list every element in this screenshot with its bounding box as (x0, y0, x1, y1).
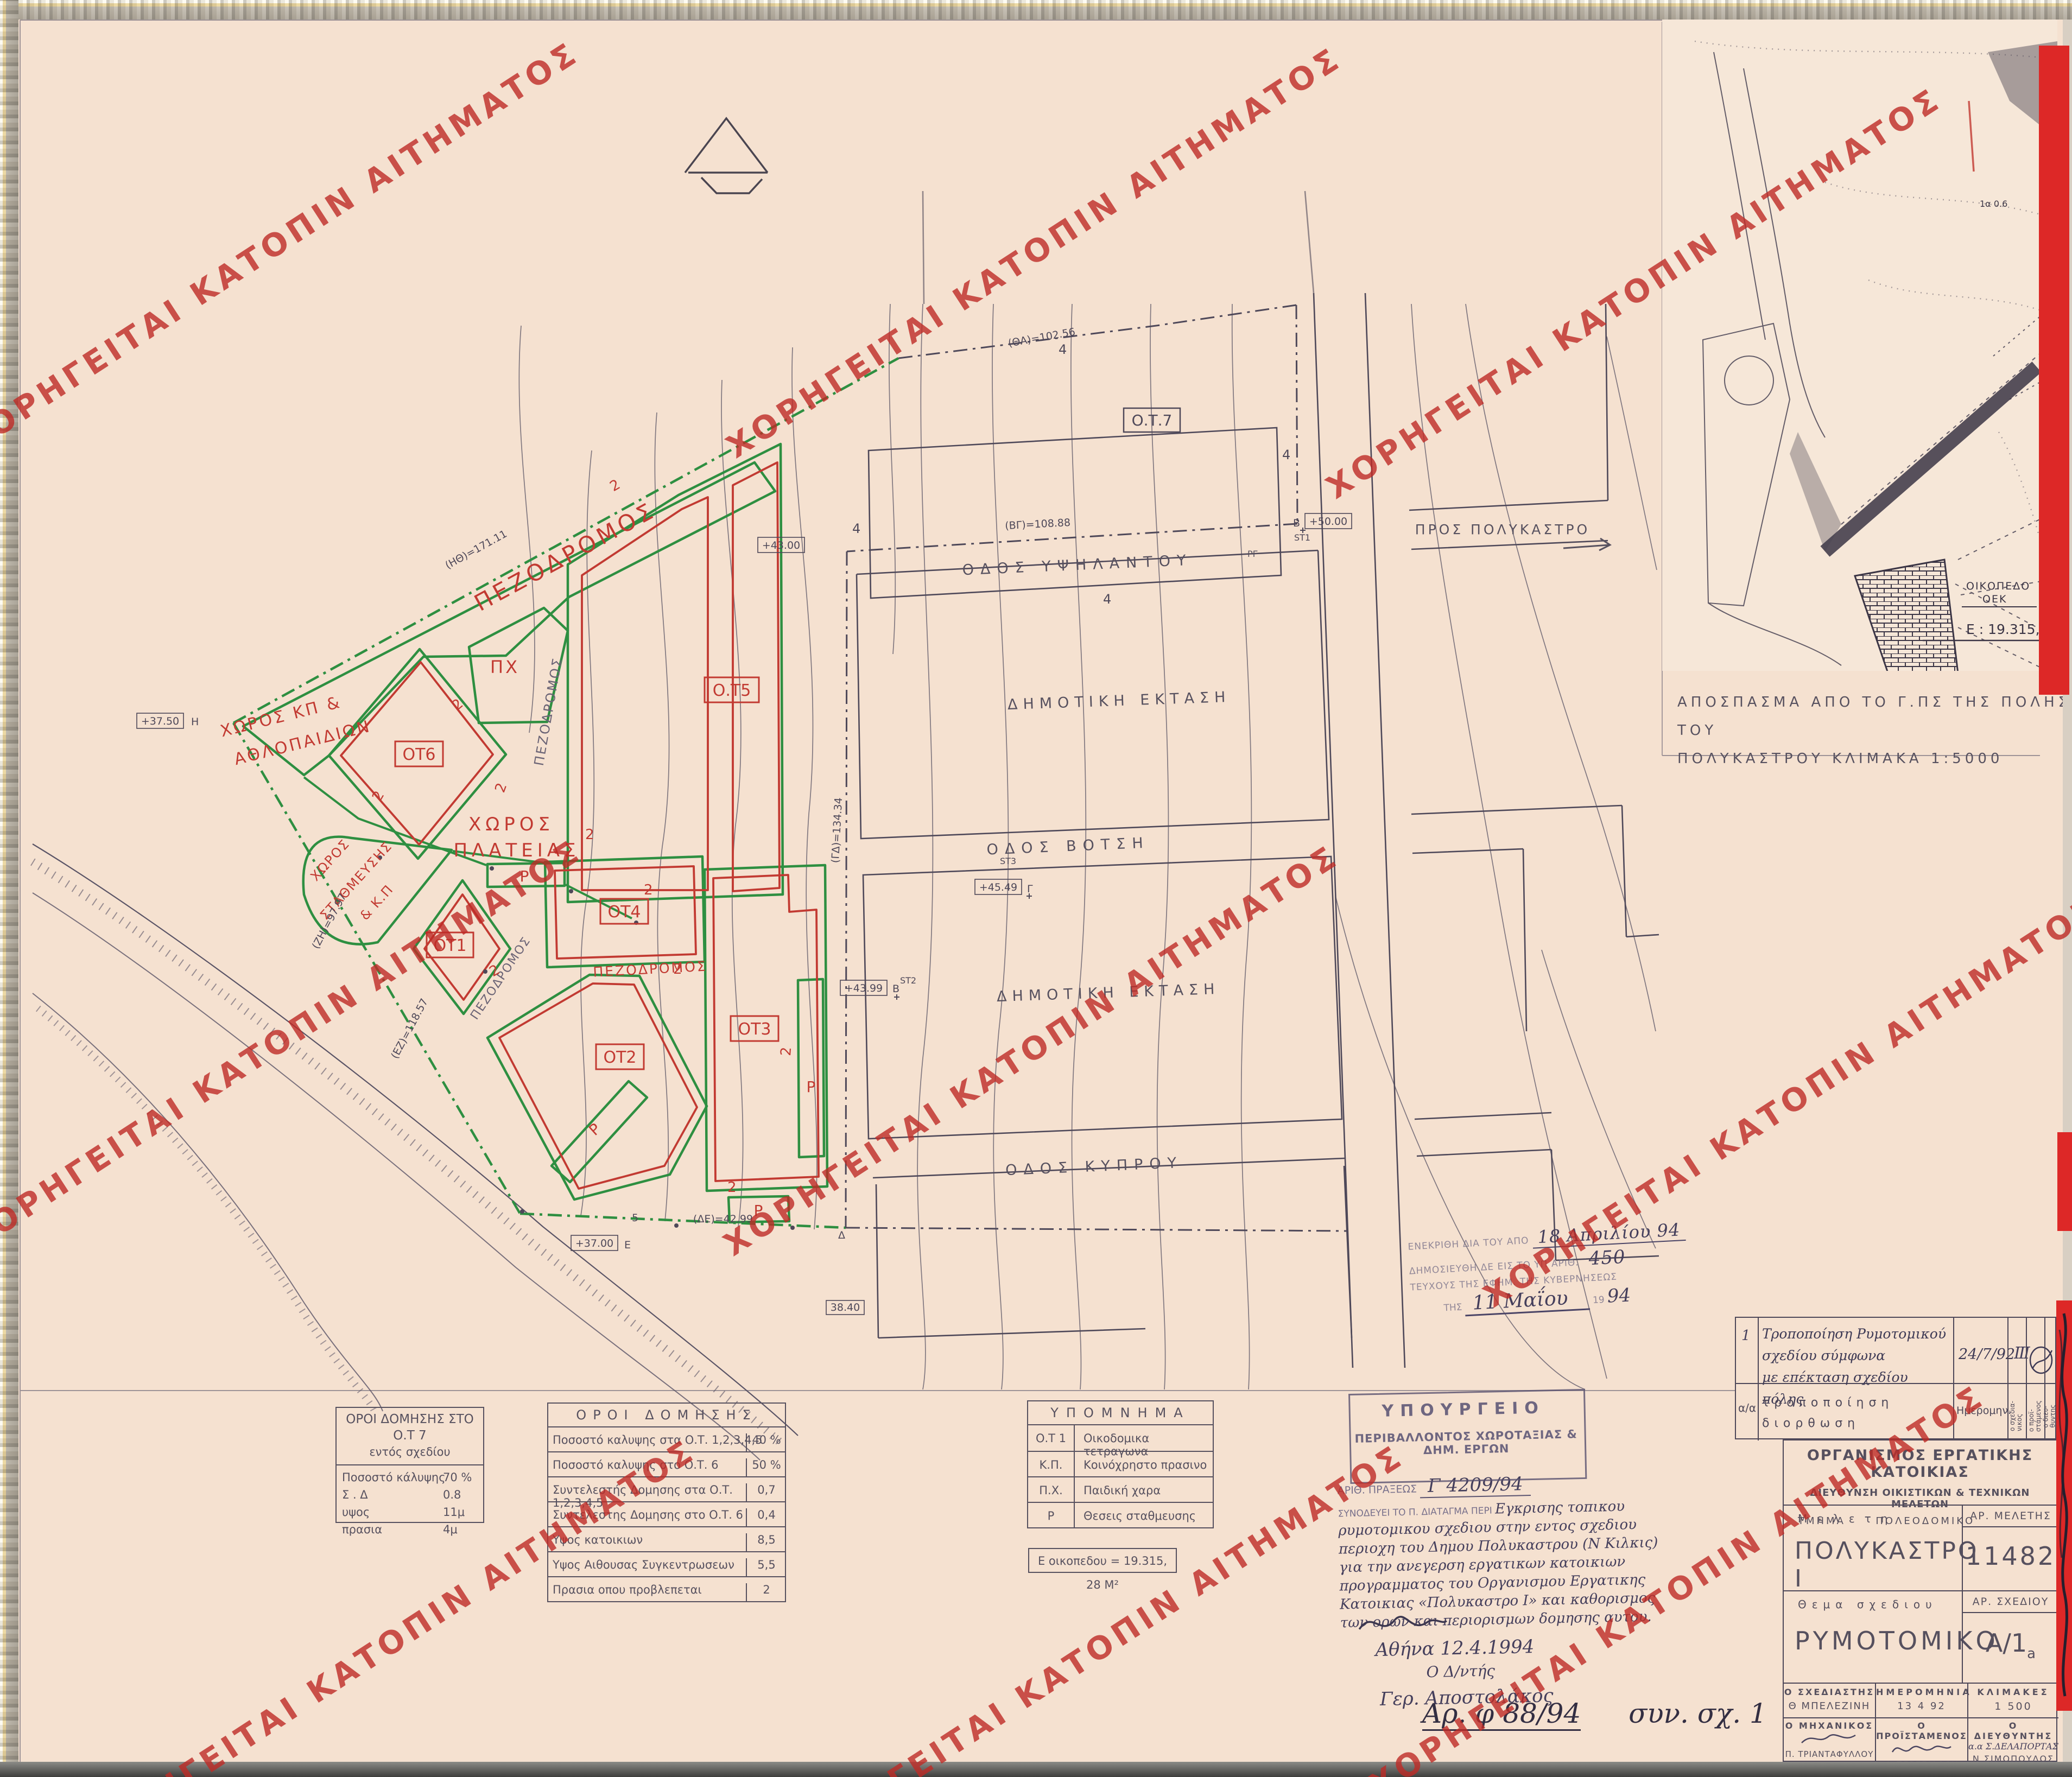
contour-mark: 4 (1103, 592, 1111, 607)
row-label: πρασια (342, 1523, 382, 1536)
pezodromos-label: ΠΕΖΟΔΡΟΜΟΣ (470, 497, 661, 617)
accompanies-label: ΣΥΝΟΔΕΥΕΙ ΤΟ Π. ΔΙΑΤΑΓΜΑ ΠΕΡΙ (1338, 1506, 1492, 1520)
scale-label: ΚΛΙΜΑΚΕΣ (1968, 1684, 2058, 1697)
designer-label: Ο ΣΧΕΔΙΑΣΤΗΣ (1784, 1684, 1875, 1697)
row-value: 70 % (443, 1471, 472, 1484)
revision-desc-line: Τροποποίηση Ρυμοτομικού σχεδίου σύμφωνα (1762, 1323, 1953, 1367)
vertical-header-line: στάμενος (2035, 1400, 2042, 1432)
city-boundary-dark (1296, 305, 1297, 524)
row-label: Ποσοστό κάλυψης (342, 1471, 446, 1484)
table-row: υψος 11μ (337, 1501, 483, 1519)
study-no-value: 11482 (1963, 1527, 2058, 1571)
row-value: 11μ (443, 1506, 465, 1519)
inset-parcel-label: ΟΙΚΟΠΕΔΟ (1966, 580, 2030, 592)
contour-line (519, 326, 535, 733)
inset-dark-blob (1790, 432, 1841, 551)
archive-note-sheet: συν. σχ. 1 (1629, 1698, 1767, 1729)
pt-mark: ST2 (900, 975, 916, 986)
row-value: 40 % (746, 1433, 786, 1452)
legend-code: Ο.Τ 1 (1028, 1432, 1074, 1445)
legend-title: ΥΠΟΜΝΗΜΑ (1028, 1401, 1213, 1425)
dimension-mark: 2 (369, 788, 388, 804)
table-row: Υψος Αιθουσας Συγκεντρωσεων 5,5 (548, 1551, 785, 1576)
row-value: 8,5 (746, 1533, 786, 1552)
street-mark-rg: ΡΓ (1247, 549, 1258, 559)
elev-mark: +50.00 (1309, 516, 1347, 528)
street-label-votsi: ΟΔΟΣ ΒΟΤΣΗ (986, 834, 1150, 858)
inset-map: ΟΙΚΟΠΕΔΟ ΟΕΚ Ε : 19.315,28 μ² 1α 0.6 (1662, 20, 2057, 671)
legend-label: Κοινόχρηστο πρασινο (1083, 1458, 1207, 1471)
red-block-outlines (341, 462, 819, 1189)
row-label: Ποσοστό καλυψης στα Ο.Τ. 1,2,3,4,5 (553, 1433, 763, 1446)
inset-parcel-outline (1703, 323, 1790, 606)
pezodromos-label: ΠΕΖΟΔΡΟΜΟΣ (531, 656, 566, 767)
legend-divider (1074, 1477, 1075, 1503)
inset-small-mark: 1α 0.6 (1980, 199, 2007, 209)
date-label: ΗΜΕΡΟΜΗΝΙΑ (1876, 1684, 1967, 1697)
legend-divider (1074, 1425, 1075, 1451)
row-value: 0,4 (746, 1508, 786, 1527)
red-film-strip-mid (2057, 1132, 2072, 1231)
block-label-text: ΟΤ3 (738, 1020, 771, 1039)
table-row: Σ . Δ 0.8 (337, 1484, 483, 1501)
inset-dark-band (1825, 367, 2037, 551)
street-label-kyprou: ΟΔΟΣ ΚΥΠΡΟΥ (1005, 1154, 1183, 1179)
subject-name: ΡΥΜΟΤΟΜΙΚΟ (1784, 1611, 1962, 1655)
dimension-mark: 2 (585, 827, 594, 843)
stamp-handwriting: Εγκρισης τοπικου (1495, 1498, 1625, 1517)
legend-divider (1074, 1452, 1075, 1477)
drawing-no-sub: a (2027, 1646, 2036, 1662)
stathmefsi-label: & Κ.Π (357, 881, 397, 923)
revision-date: 24/7/92 (1959, 1346, 2015, 1363)
signature-squiggle (1889, 1741, 1954, 1757)
revision-table: 1 Τροποποίηση Ρυμοτομικού σχεδίου σύμφων… (1735, 1317, 2056, 1439)
legend-row: Κ.Π. Κοινόχρηστο πρασινο (1028, 1451, 1213, 1476)
revision-grid-line (2026, 1318, 2027, 1440)
approval-line4: ΤΗΣ (1443, 1302, 1462, 1314)
revision-head-no: α/α (1738, 1401, 1756, 1414)
elev-mark: 38.40 (831, 1302, 860, 1313)
pt-mark: ST1 (1294, 532, 1310, 543)
revision-grid-line (1758, 1318, 1759, 1440)
pt-mark: Β (892, 983, 899, 995)
ot2-green-outline (487, 975, 707, 1200)
ot2-red (499, 983, 697, 1189)
ot5-red-left (582, 497, 708, 890)
parking-letter: Ρ (585, 1120, 604, 1139)
site-boundary-lines (233, 305, 1346, 1231)
inset-caption-line2: ΠΟΛΥΚΑΣΤΡΟΥ ΚΛΙΜΑΚΑ 1:5000 (1677, 745, 2072, 773)
scale-value: 1 500 (1968, 1697, 2058, 1712)
signature-grid: Ο ΣΧΕΔΙΑΣΤΗΣ Θ ΜΠΕΛΕΖΙΝΗ ΗΜΕΡΟΜΗΝΙΑ 13 4… (1784, 1683, 2056, 1763)
legend-code: Ρ (1028, 1509, 1074, 1522)
table-oroi-ot7: ΟΡΟΙ ΔΟΜΗΣΗΣ ΣΤΟ Ο.Τ 7 εντός σχεδίου Ποσ… (335, 1407, 484, 1523)
contour-line (1411, 304, 1607, 1379)
direction-label-polykastro: ΠΡΟΣ ΠΟΛΥΚΑΣΤΡΟ (1415, 522, 1590, 537)
inset-road (1744, 68, 1825, 437)
row-value: 4μ (443, 1523, 458, 1536)
legend: ΥΠΟΜΝΗΜΑ Ο.Τ 1 Οικοδομικα τετραγωνα Κ.Π.… (1027, 1400, 1214, 1528)
revision-signature (2028, 1345, 2055, 1375)
approval-hw-year: 94 (1607, 1284, 1631, 1307)
signature-squiggle (1356, 1605, 1449, 1640)
subject-section: Θεμα σχεδιου ΡΥΜΟΤΟΜΙΚΟ ΑΡ. ΣΧΕΔΙΟΥ Α/1a (1784, 1590, 2056, 1683)
block-label-ot6: ΟΤ6 (395, 741, 443, 766)
block-label-ot3: ΟΤ3 (731, 1016, 778, 1041)
contour-mark: 4 (1282, 447, 1290, 462)
inset-feature (1725, 356, 1773, 405)
legend-divider (1074, 1503, 1075, 1528)
supervisor-label: Ο ΠΡΟΪΣΤΑΜΕΝΟΣ (1876, 1718, 1967, 1741)
row-label: Σ . Δ (342, 1488, 368, 1501)
contour-line (1150, 304, 1168, 1389)
dimension-mark: 2 (644, 882, 653, 898)
pezodromos-label: ΠΕΖΟΔΡΟΜΟΣ (593, 959, 708, 980)
revision-grid-line (2044, 1318, 2045, 1440)
block-label-text: Ο.Τ.7 (1132, 411, 1173, 429)
contour-line (1607, 337, 1657, 570)
plot-area-box: Ε οικοπεδου = 19.315, 28 Μ² (1028, 1548, 1177, 1573)
inset-road-dashed (1841, 352, 2042, 524)
table-subtitle: εντός σχεδίου (337, 1444, 483, 1460)
legend-row: Ο.Τ 1 Οικοδομικα τετραγωνα (1028, 1425, 1213, 1451)
row-label: υψος (342, 1506, 370, 1519)
scanned-plan-sheet: ΟΤ1 ΟΤ2 ΟΤ3 ΟΤ4 Ο.Τ5 ΟΤ6 (0, 0, 2072, 1777)
ink-scribble (2055, 1308, 2072, 1704)
dimension-mark: 2 (607, 477, 623, 495)
contour-mark: 4 (852, 521, 860, 536)
revision-number: 1 (1741, 1328, 1751, 1344)
scan-shadow-bottom (0, 1762, 2072, 1777)
row-label: Πρασια οπου προβλεπεται (553, 1583, 702, 1596)
parking-ot3-right-outline (798, 979, 824, 1157)
contour-line (792, 347, 817, 1229)
ministry-stamp: ΥΠΟΥΡΓΕΙΟ ΠΕΡΙΒΑΛΛΟΝΤΟΣ ΧΩΡΟΤΑΞΙΑΣ & ΔΗΜ… (1335, 1384, 1678, 1711)
dimension-mark: 2 (492, 781, 510, 795)
pt-mark: Η (191, 716, 199, 728)
legend-code: Π.Χ. (1028, 1484, 1074, 1497)
block-label-ot2: ΟΤ2 (596, 1044, 644, 1069)
pt-mark: Ε (624, 1239, 631, 1251)
table-title: ΟΡΟΙ ΔΟΜΗΣΗΣ ΣΤΟ Ο.Τ 7 (337, 1411, 483, 1444)
elev-mark: +45.49 (979, 881, 1017, 893)
dimension-mark: 2 (778, 1046, 795, 1057)
block-label-text: ΟΤ4 (607, 903, 641, 922)
revision-head-sig2: ο προϊ- στάμενος (2028, 1400, 2042, 1432)
inset-red-mark (1969, 101, 1974, 172)
signature-squiggle (1799, 1731, 1859, 1747)
contour-line (917, 304, 933, 1389)
elev-mark: +37.50 (141, 715, 179, 727)
len-mark: (ΓΔ)=134.34 (829, 797, 845, 864)
city-boundary-dark (847, 524, 1297, 551)
designer-name: Θ ΜΠΕΛΕΖΙΝΗ (1784, 1697, 1875, 1712)
metallic-tape-top (0, 0, 2072, 20)
elev-mark: +43.00 (762, 540, 800, 551)
pt-mark: Γ (1027, 883, 1033, 895)
table-title: ΟΡΟΙ ΔΟΜΗΣΗΣ (548, 1404, 785, 1426)
elev-mark: +37.00 (575, 1237, 613, 1249)
pt-mark: ST3 (1000, 856, 1016, 866)
row-label: Υψος Αιθουσας Συγκεντρωσεων (553, 1558, 734, 1571)
block-label-text: ΟΤ2 (603, 1048, 636, 1067)
subject-label: Θεμα σχεδιου (1784, 1591, 1962, 1611)
elev-mark: +43.99 (845, 982, 883, 994)
legend-code: Κ.Π. (1028, 1458, 1074, 1471)
inset-parcel-label: ΟΕΚ (1982, 593, 2007, 605)
row-value: 5,5 (746, 1558, 786, 1577)
revision-head-sig1: ο σχεδια- νικος (2009, 1401, 2023, 1431)
contour-line (655, 412, 669, 1221)
approval-year-pre: 19 (1593, 1294, 1605, 1306)
row-value: 2 (746, 1583, 786, 1602)
row-value: 0.8 (443, 1488, 461, 1501)
study-section: Μελετη ΠΟΛΥΚΑΣΤΡΟ Ι ΑΡ. ΜΕΛΕΤΗΣ 11482 (1784, 1505, 2056, 1590)
drawing-no-main: Α/1 (1986, 1628, 2027, 1658)
row-value: 0,7 (746, 1483, 786, 1502)
direction-arrow (1563, 538, 1610, 550)
contour-line (1466, 304, 1656, 1031)
legend-label: Θεσεις σταθμευσης (1083, 1509, 1196, 1522)
area-label-dimotiki: ΔΗΜΟΤΙΚΗ ΕΚΤΑΣΗ (1008, 689, 1231, 713)
city-boundary-dark (846, 1228, 1346, 1231)
px-label: ΠΧ (490, 657, 519, 677)
inset-caption: ΑΠΟΣΠΑΣΜΑ ΑΠΟ ΤΟ Γ.ΠΣ ΤΗΣ ΠΟΛΗΣ ΤΟΥ ΠΟΛΥ… (1677, 688, 2072, 773)
table-row: Ποσοστό κάλυψης 70 % (337, 1465, 483, 1484)
engineer-label: Ο ΜΗΧΑΝΙΚΟΣ (1784, 1718, 1875, 1731)
inset-caption-line1: ΑΠΟΣΠΑΣΜΑ ΑΠΟ ΤΟ Γ.ΠΣ ΤΗΣ ΠΟΛΗΣ ΤΟΥ (1677, 688, 2072, 745)
block-label-text: ΟΤ6 (402, 745, 435, 764)
legend-row: Ρ Θεσεις σταθμευσης (1028, 1502, 1213, 1527)
city-boundary-dark (846, 551, 847, 1228)
engineer-name: Π. ΤΡΙΑΝΤΑΦΥΛΛΟΥ (1784, 1749, 1875, 1759)
legend-label: Παιδική χαρα (1083, 1484, 1161, 1497)
metallic-tape-left (0, 0, 18, 1777)
block-label-ot7: Ο.Τ.7 (1124, 408, 1180, 432)
north-arrow-icon (685, 118, 768, 193)
len-mark: (ΒΓ)=108.88 (1005, 517, 1071, 532)
date-value: 13 4 92 (1876, 1697, 1967, 1712)
inset-road (1708, 603, 1841, 665)
parking-letter: Ρ (807, 1078, 816, 1096)
red-film-strip-top (2039, 46, 2069, 695)
revision-grid-line (2007, 1318, 2008, 1440)
plateia-label: ΧΩΡΟΣ (468, 814, 554, 835)
inset-oek-parcel-hatched (1855, 560, 1958, 671)
dimension-mark: 2 (673, 961, 682, 978)
vertical-header-line: νικος (2016, 1401, 2023, 1431)
row-value: 50 % (746, 1458, 786, 1477)
block-label-ot5: Ο.Τ5 (705, 677, 759, 702)
contour-mark: 4 (1059, 342, 1067, 357)
drawing-no-label: ΑΡ. ΣΧΕΔΙΟΥ (1963, 1591, 2058, 1613)
block-label-text: Ο.Τ5 (713, 681, 751, 700)
study-name: ΠΟΛΥΚΑΣΤΡΟ Ι (1784, 1525, 1962, 1592)
legend-row: Π.Χ. Παιδική χαρα (1028, 1476, 1213, 1502)
len-mark: (ΗΘ)=171.11 (443, 528, 509, 572)
contour-line (1232, 304, 1252, 1389)
director-acting: α.α Σ.ΔΕΛΑΠΟΡΤΑΣ (1968, 1741, 2058, 1751)
dimension-mark: 2 (727, 1179, 737, 1196)
pt-mark: Β (1293, 517, 1300, 529)
pt-mark: 5 (632, 1212, 638, 1224)
table-row: πρασια 4μ (337, 1519, 483, 1536)
director-label: Ο ΔΙΕΥΘΥΝΤΗΣ (1968, 1718, 2058, 1741)
inset-map-drawing: ΟΙΚΟΠΕΔΟ ΟΕΚ Ε : 19.315,28 μ² 1α 0.6 (1662, 20, 2057, 671)
study-no-label: ΑΡ. ΜΕΛΕΤΗΣ (1963, 1506, 2058, 1527)
table-row: Πρασια οπου προβλεπεται 2 (548, 1576, 785, 1601)
pt-mark: Δ (838, 1229, 845, 1241)
block-label-ot4: ΟΤ4 (600, 899, 648, 924)
red-area-labels: ΠΕΖΟΔΡΟΜΟΣ ΠΕΖΟΔΡΟΜΟΣ ΠΕΖΟΔΡΟΜΟΣ ΠΕΖΟΔΡΟ… (218, 477, 815, 1220)
